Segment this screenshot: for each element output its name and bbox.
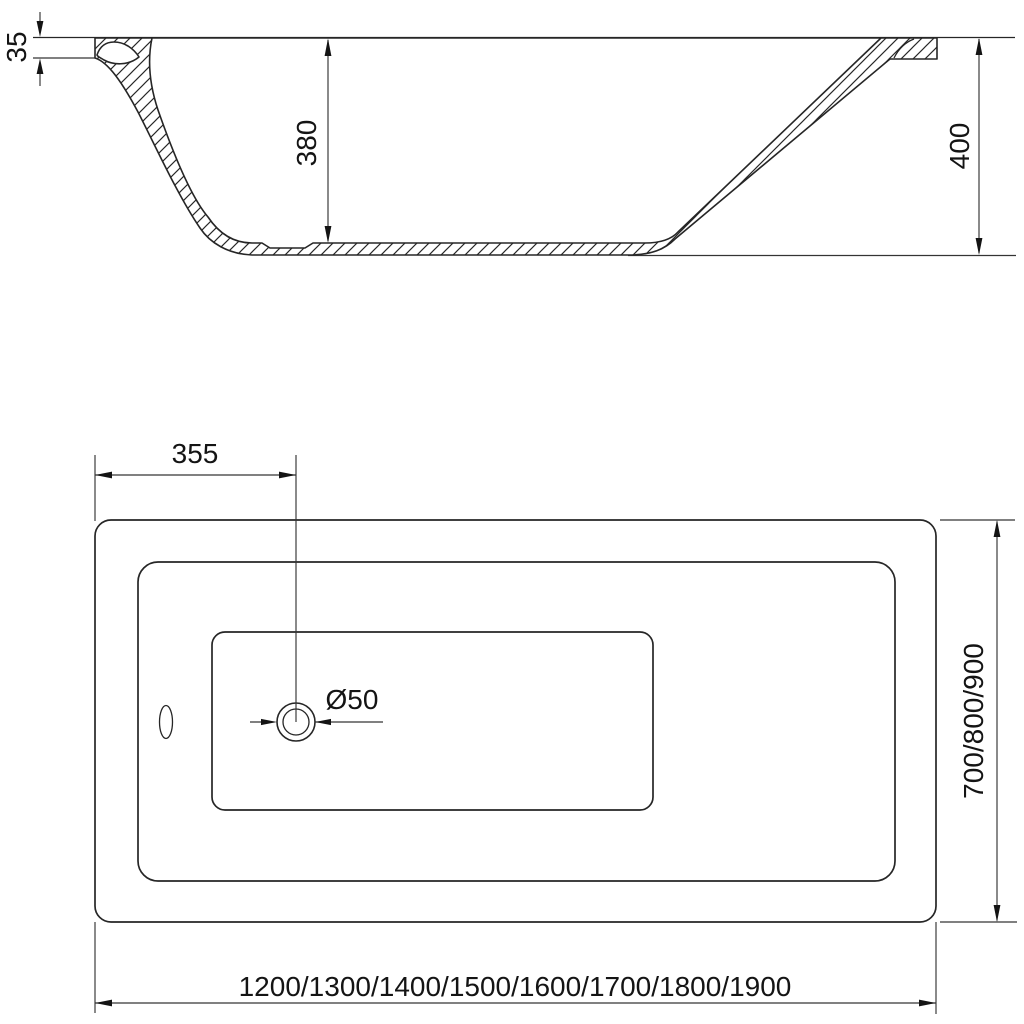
- arrow-up-icon: [37, 59, 44, 75]
- dim-drain-offset: 355: [95, 438, 296, 722]
- bathtub-outer-edge: [95, 520, 936, 922]
- arrow-down-icon: [37, 21, 44, 37]
- arrow-down-icon: [325, 226, 332, 243]
- arrow-up-icon: [994, 520, 1001, 537]
- dim-drain-diameter: Ø50: [250, 684, 383, 725]
- section-view: 35 380 400: [1, 12, 1016, 256]
- arrow-up-icon: [325, 39, 332, 57]
- arrow-left-icon: [95, 1000, 112, 1007]
- bathtub-basin-bottom: [212, 632, 653, 810]
- dim-length-options-label: 1200/1300/1400/1500/1600/1700/1800/1900: [239, 971, 792, 1002]
- arrow-up-icon: [976, 38, 983, 55]
- arrow-right-icon: [919, 1000, 936, 1007]
- dim-rim-thickness: 35: [1, 12, 43, 86]
- overflow-hole: [160, 706, 173, 739]
- dim-length-options: 1200/1300/1400/1500/1600/1700/1800/1900: [95, 922, 936, 1014]
- dim-width-options-label: 700/800/900: [958, 643, 989, 799]
- dim-inner-depth-label: 380: [291, 120, 322, 167]
- arrow-right-icon: [261, 719, 277, 725]
- dim-drain-diameter-label: Ø50: [326, 684, 379, 715]
- bathtub-shell-section: [95, 38, 937, 255]
- dim-overall-height: 400: [944, 38, 982, 255]
- arrow-down-icon: [976, 238, 983, 255]
- dim-overall-height-label: 400: [944, 123, 975, 170]
- arrow-left-icon: [315, 719, 331, 725]
- bathtub-technical-drawing: 35 380 400 355: [0, 0, 1024, 1024]
- dim-rim-thickness-label: 35: [1, 31, 32, 62]
- arrow-left-icon: [95, 472, 112, 479]
- plan-view: 355 Ø50 700/800/900 1200/1300/1400/1500/…: [95, 438, 1017, 1014]
- drawing-sheet: 35 380 400 355: [0, 0, 1024, 1024]
- arrow-right-icon: [279, 472, 296, 479]
- arrow-down-icon: [994, 905, 1001, 922]
- dim-drain-offset-label: 355: [172, 438, 219, 469]
- dim-width-options: 700/800/900: [940, 520, 1017, 922]
- dim-inner-depth: 380: [291, 39, 331, 244]
